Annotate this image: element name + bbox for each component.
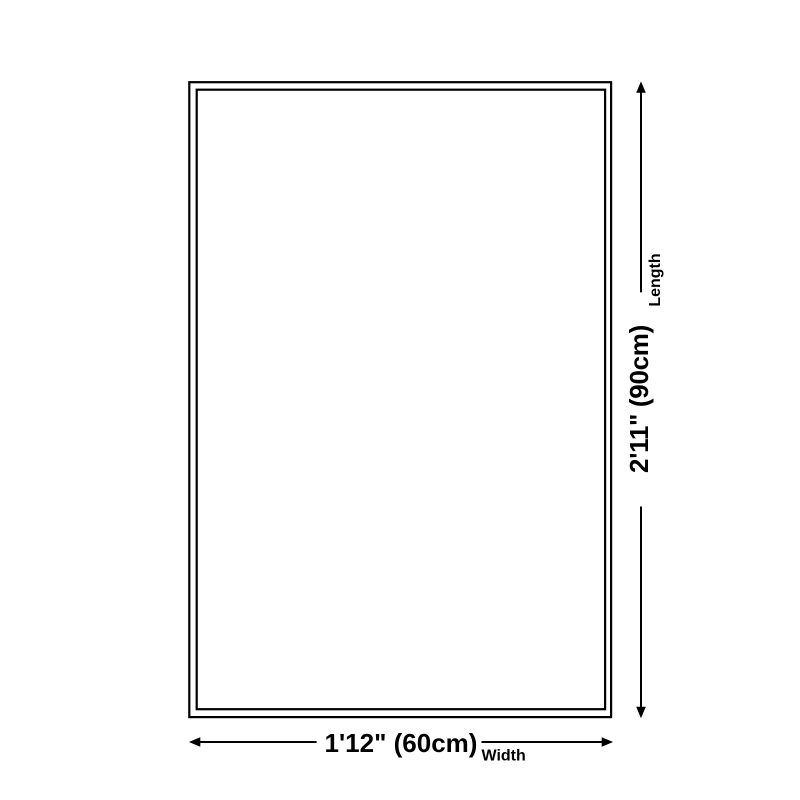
svg-text:Width: Width [482, 748, 526, 765]
svg-text:2'11" (90cm): 2'11" (90cm) [624, 325, 654, 473]
svg-text:Length: Length [647, 253, 664, 306]
svg-text:1'12" (60cm): 1'12" (60cm) [325, 728, 478, 758]
